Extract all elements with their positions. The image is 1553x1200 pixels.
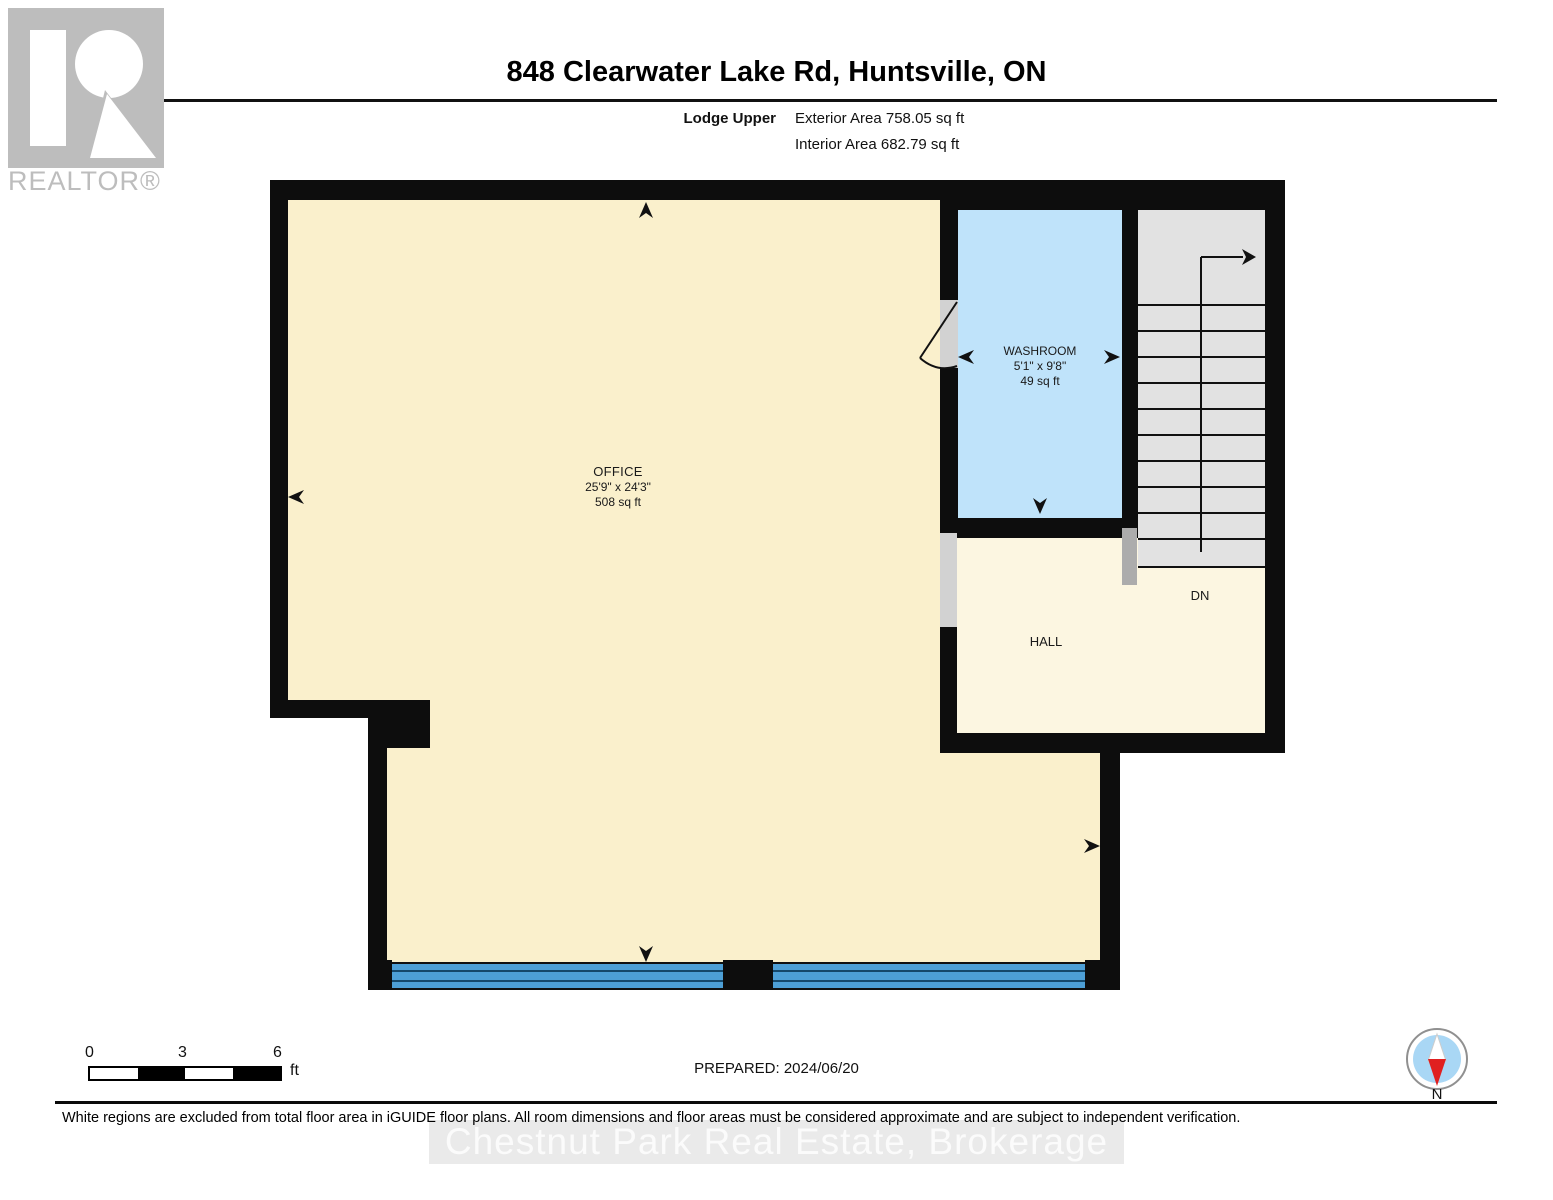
window-bottom-right (773, 962, 1085, 990)
wall-right (1265, 180, 1285, 753)
title-divider (55, 99, 1497, 102)
wall-notch-corner (387, 718, 430, 748)
wall-bottom-left-corner (368, 960, 392, 990)
wall-washroom-bottom (940, 518, 1138, 538)
office-area: 508 sq ft (518, 495, 718, 510)
stairs-area (1138, 210, 1265, 568)
footer-divider (55, 1101, 1497, 1104)
wall-lower-right (1100, 733, 1120, 985)
wall-window-divider (723, 960, 773, 990)
washroom-door-opening (940, 300, 958, 368)
wall-notch-horizontal (270, 700, 430, 718)
wall-top-right-inner (940, 198, 1285, 210)
floor-label: Lodge Upper (684, 110, 777, 127)
wall-lower-left (368, 718, 387, 985)
floor-plan-page: 848 Clearwater Lake Rd, Huntsville, ON L… (0, 0, 1553, 1200)
hall-label: HALL (996, 634, 1096, 650)
realtor-logo-icon (8, 8, 164, 168)
wall-washroom-stairs-divider (1122, 200, 1138, 538)
realtor-logo-text: REALTOR® (8, 166, 178, 197)
exterior-area-text: Exterior Area 758.05 sq ft (795, 110, 964, 127)
washroom-name: WASHROOM (958, 344, 1122, 359)
disclaimer-text: White regions are excluded from total fl… (62, 1110, 1240, 1126)
wall-top (270, 180, 1285, 200)
brokerage-watermark-text: Chestnut Park Real Estate, Brokerage (429, 1120, 1124, 1164)
office-name: OFFICE (518, 464, 718, 480)
interior-area-text: Interior Area 682.79 sq ft (795, 136, 959, 153)
hall-door-opening (940, 533, 957, 627)
prepared-date: PREPARED: 2024/06/20 (0, 1060, 1553, 1077)
wall-hall-bottom (940, 733, 1285, 753)
brokerage-watermark: Chestnut Park Real Estate, Brokerage (0, 1120, 1553, 1164)
wall-left (270, 180, 288, 718)
stairs-dn-label: DN (1180, 588, 1220, 604)
office-floor-upper (288, 198, 940, 718)
washroom-dims: 5'1" x 9'8" (958, 359, 1122, 374)
window-bottom-left (392, 962, 723, 990)
page-title: 848 Clearwater Lake Rd, Huntsville, ON (0, 56, 1553, 89)
office-dims: 25'9" x 24'3" (518, 480, 718, 495)
washroom-area: 49 sq ft (958, 374, 1122, 389)
office-label: OFFICE 25'9" x 24'3" 508 sq ft (518, 464, 718, 510)
washroom-label: WASHROOM 5'1" x 9'8" 49 sq ft (958, 344, 1122, 389)
stairs-railing (1122, 528, 1137, 585)
compass-icon (1404, 1026, 1470, 1092)
